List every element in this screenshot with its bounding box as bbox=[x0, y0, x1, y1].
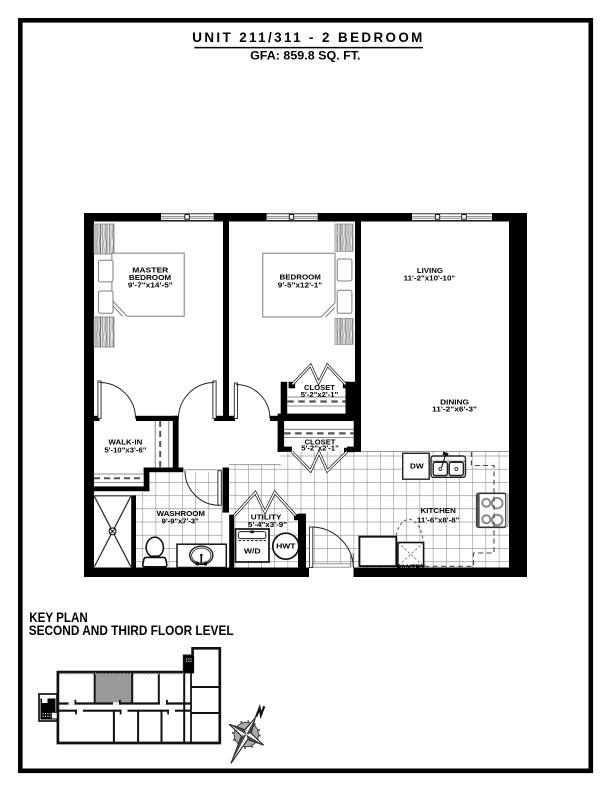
svg-text:SECOND AND THIRD FLOOR LEVEL: SECOND AND THIRD FLOOR LEVEL bbox=[29, 623, 234, 638]
svg-text:5'-4"x3'-9": 5'-4"x3'-9" bbox=[248, 520, 287, 529]
svg-text:HWT: HWT bbox=[276, 541, 296, 550]
svg-text:9'-9"x7'-3": 9'-9"x7'-3" bbox=[162, 517, 199, 526]
svg-text:5'-2"x2'-1": 5'-2"x2'-1" bbox=[301, 390, 339, 399]
svg-text:5'-2"x2'-1": 5'-2"x2'-1" bbox=[301, 444, 339, 453]
svg-text:11'-2"x10'-10": 11'-2"x10'-10" bbox=[404, 273, 456, 282]
svg-text:PANTRY: PANTRY bbox=[396, 562, 425, 571]
svg-text:W/D: W/D bbox=[244, 547, 261, 556]
svg-text:5'-10"x3'-6": 5'-10"x3'-6" bbox=[104, 446, 146, 455]
svg-text:DW: DW bbox=[410, 462, 424, 471]
svg-text:11'-2"x6'-3": 11'-2"x6'-3" bbox=[432, 404, 477, 413]
svg-text:UNIT 211/311 - 2 BEDROOM: UNIT 211/311 - 2 BEDROOM bbox=[192, 30, 424, 45]
svg-text:11'-6"x8'-8": 11'-6"x8'-8" bbox=[417, 515, 460, 524]
svg-text:9'-7"x14'-5": 9'-7"x14'-5" bbox=[128, 281, 173, 290]
svg-text:GFA: 859.8 SQ. FT.: GFA: 859.8 SQ. FT. bbox=[250, 49, 360, 62]
svg-text:9'-5"x12'-1": 9'-5"x12'-1" bbox=[278, 281, 322, 290]
svg-text:KITCHEN: KITCHEN bbox=[421, 506, 456, 515]
